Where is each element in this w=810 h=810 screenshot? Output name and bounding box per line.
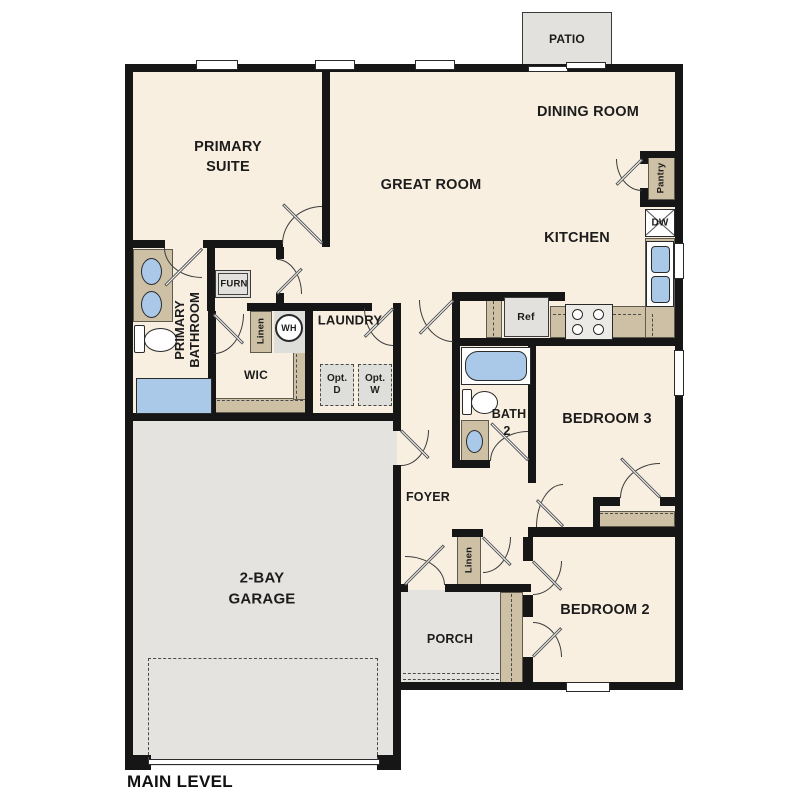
shower-primary bbox=[136, 378, 212, 414]
window-kitchen bbox=[674, 243, 684, 279]
bed2-closet-rod bbox=[511, 594, 512, 681]
wall bbox=[523, 595, 533, 617]
primary-suite-label-2: SUITE bbox=[206, 159, 250, 175]
bath2-label-2: 2 bbox=[503, 424, 510, 438]
window-bedroom3 bbox=[674, 350, 684, 396]
porch-edge-dash bbox=[403, 673, 499, 674]
linen-hall-label: Linen bbox=[256, 318, 267, 344]
window bbox=[315, 60, 355, 70]
porch-edge-dash bbox=[403, 679, 499, 680]
vanity-sink-1 bbox=[141, 258, 162, 285]
wall bbox=[247, 303, 310, 311]
garage-label-1: 2-BAY bbox=[240, 570, 285, 587]
wall bbox=[125, 413, 401, 421]
opt-w-line2: W bbox=[370, 385, 379, 397]
dishwasher-label: DW bbox=[651, 218, 668, 229]
window-bedroom2 bbox=[566, 682, 610, 692]
wic-rod-dash bbox=[217, 400, 303, 401]
wall bbox=[452, 529, 483, 537]
wic-label: WIC bbox=[244, 368, 268, 382]
wall bbox=[452, 346, 460, 468]
kitchen-sink-basin-2 bbox=[651, 276, 670, 303]
bath2-sink bbox=[466, 430, 483, 453]
wall bbox=[445, 584, 531, 592]
wall bbox=[660, 497, 676, 506]
burner bbox=[572, 309, 583, 320]
wic-rod-dash-2 bbox=[296, 354, 297, 399]
wall bbox=[322, 64, 330, 247]
counter-dash-v bbox=[652, 314, 653, 336]
wall bbox=[528, 527, 675, 537]
door-bed3-closet bbox=[620, 463, 660, 498]
kitchen-sink-basin-1 bbox=[651, 246, 670, 273]
primary-suite-label-1: PRIMARY bbox=[194, 139, 262, 155]
door-furnace bbox=[277, 259, 302, 294]
great-room-label: GREAT ROOM bbox=[381, 177, 482, 193]
garage-label-2: GARAGE bbox=[228, 591, 295, 608]
bed3-closet-rod bbox=[600, 513, 673, 514]
door-wic bbox=[214, 314, 244, 354]
wall bbox=[401, 584, 408, 592]
wall bbox=[393, 303, 401, 413]
vanity-sink-2 bbox=[141, 291, 162, 318]
wall bbox=[393, 413, 401, 431]
patio-slider-panel bbox=[566, 62, 606, 69]
refrigerator-label: Ref bbox=[517, 311, 535, 323]
door-front bbox=[405, 556, 445, 585]
floor-plan: Opt. D Opt. W PATIO DINING ROOM GREAT RO… bbox=[0, 0, 810, 810]
range-stove bbox=[565, 304, 613, 340]
wall bbox=[305, 311, 313, 413]
burner bbox=[593, 324, 604, 335]
window bbox=[415, 60, 455, 70]
dining-room-label: DINING ROOM bbox=[537, 104, 639, 120]
kitchen-cabinet-strip bbox=[486, 299, 502, 338]
primary-bathroom-label: PRIMARY BATHROOM bbox=[172, 292, 202, 368]
foyer-label: FOYER bbox=[406, 490, 450, 504]
wall bbox=[276, 247, 284, 259]
garage-door-dashed bbox=[148, 658, 378, 760]
optional-dryer: Opt. D bbox=[320, 364, 354, 406]
door-garage bbox=[401, 430, 429, 466]
patio-slider-panel bbox=[528, 66, 568, 72]
door-primary-suite bbox=[282, 206, 322, 244]
wall bbox=[523, 537, 533, 561]
laundry-label: LAUNDRY bbox=[318, 313, 382, 328]
porch-label: PORCH bbox=[427, 632, 473, 646]
bathtub bbox=[465, 351, 527, 381]
burner bbox=[572, 324, 583, 335]
wall bbox=[203, 240, 283, 248]
bedroom2-label: BEDROOM 2 bbox=[560, 602, 650, 618]
cabinet-dash bbox=[493, 301, 494, 336]
optional-washer: Opt. W bbox=[358, 364, 392, 406]
opt-w-line1: Opt. bbox=[365, 373, 385, 385]
wall bbox=[310, 303, 372, 311]
wall bbox=[397, 682, 683, 690]
burner bbox=[593, 309, 604, 320]
bedroom3-label: BEDROOM 3 bbox=[562, 411, 652, 427]
wall bbox=[125, 240, 165, 248]
door-hall-bedrooms bbox=[483, 537, 511, 573]
door-bed2-closet bbox=[533, 622, 562, 657]
door-bedroom2 bbox=[533, 561, 562, 595]
door-hall bbox=[419, 300, 453, 342]
water-heater-label: WH bbox=[281, 323, 296, 333]
pantry-label: Pantry bbox=[656, 163, 667, 194]
furnace-label: FURN bbox=[220, 279, 247, 290]
wall bbox=[452, 460, 490, 468]
wall bbox=[593, 497, 600, 527]
linen-foyer-label: Linen bbox=[464, 547, 475, 573]
window bbox=[196, 60, 238, 70]
wall bbox=[207, 240, 215, 311]
kitchen-label: KITCHEN bbox=[544, 230, 610, 246]
door-primary-bath bbox=[164, 248, 202, 278]
bath2-label-1: BATH bbox=[492, 407, 527, 421]
door-bedroom3 bbox=[536, 484, 563, 527]
door-pantry bbox=[616, 159, 642, 191]
wall bbox=[207, 303, 215, 311]
wall bbox=[523, 657, 533, 684]
opt-d-line1: Opt. bbox=[327, 373, 347, 385]
opt-d-line2: D bbox=[333, 385, 340, 397]
plan-title: MAIN LEVEL bbox=[127, 772, 233, 792]
wall bbox=[393, 465, 401, 762]
patio-label: PATIO bbox=[549, 32, 585, 46]
